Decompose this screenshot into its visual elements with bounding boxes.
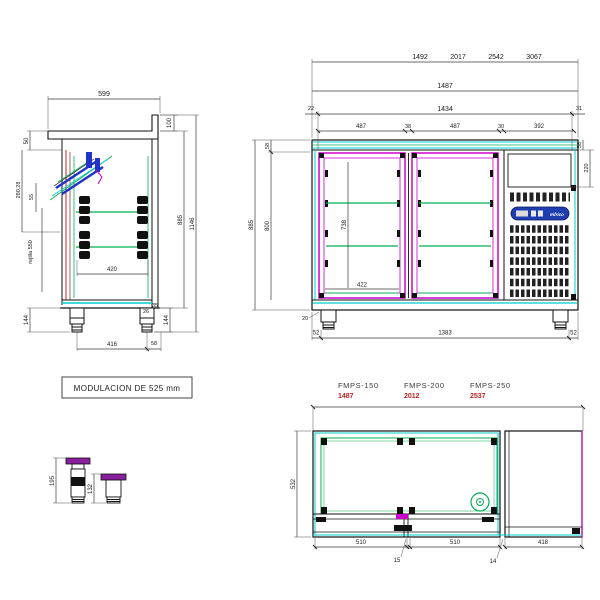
shelf-slides bbox=[79, 196, 148, 259]
dim-front-body-height: 885 bbox=[249, 219, 255, 230]
foot-detail-short: 132 bbox=[88, 474, 126, 503]
dim-inner-width: 420 bbox=[107, 267, 118, 273]
modulation-note: MODULACION DE 525 mm bbox=[62, 377, 192, 398]
dim-foot-offset-right: 52 bbox=[570, 331, 577, 337]
dim-door-inner-width: 422 bbox=[357, 283, 368, 289]
plan-body bbox=[313, 431, 500, 537]
dim-plan-door1: 510 bbox=[356, 540, 367, 546]
front-dimensions-top: 1492 2017 2542 3067 1487 22 1434 31 487 … bbox=[305, 54, 585, 150]
dim-plan-motor: 418 bbox=[538, 540, 549, 546]
dim-inner-height: 800 bbox=[265, 220, 271, 231]
dim-foot-short-height: 132 bbox=[88, 483, 94, 494]
technical-drawing-canvas: 599 100 885 1146 50 280,28 55 rejilla 55… bbox=[0, 0, 600, 600]
model-2-width: 2012 bbox=[404, 393, 420, 400]
dim-top-thickness: 50 bbox=[24, 137, 30, 144]
dim-plan-gap1: 15 bbox=[394, 558, 401, 564]
model-2-name: FMPS-200 bbox=[404, 381, 445, 390]
dim-splash-height: 100 bbox=[167, 117, 173, 128]
dim-foot-d2: 35 bbox=[152, 303, 158, 309]
dim-foot-offset-left: 52 bbox=[313, 331, 320, 337]
dim-variant-4: 3067 bbox=[526, 54, 542, 61]
dim-total-height: 1146 bbox=[190, 217, 196, 231]
brand-logo: Infrico bbox=[550, 212, 564, 217]
front-view: Infrico 1492 2017 2542 306 bbox=[249, 54, 594, 340]
control-panel[interactable]: Infrico bbox=[511, 207, 569, 220]
side-worktop bbox=[48, 115, 158, 139]
dim-left-edge: 22 bbox=[308, 106, 314, 112]
dim-foot-tall-height: 195 bbox=[50, 475, 56, 486]
motor-blank-panel bbox=[508, 154, 571, 187]
dim-side-width: 599 bbox=[98, 91, 110, 98]
dim-right-edge: 31 bbox=[576, 106, 582, 112]
dim-foot-width: 58 bbox=[151, 341, 157, 347]
dim-gap2: 30 bbox=[498, 124, 504, 130]
dim-top-height: 58 bbox=[265, 143, 271, 149]
dim-variant-2: 2017 bbox=[450, 54, 466, 61]
controller-button[interactable] bbox=[531, 211, 536, 217]
front-feet bbox=[321, 310, 568, 329]
model-3-name: FMPS-250 bbox=[470, 381, 511, 390]
side-dimensions: 599 100 885 1146 50 280,28 55 rejilla 55… bbox=[16, 91, 199, 351]
dim-motor-top: 58 bbox=[577, 142, 583, 148]
controller-display bbox=[516, 211, 528, 217]
dim-plan-depth: 532 bbox=[291, 478, 297, 489]
dim-plinth: 20 bbox=[302, 316, 308, 322]
dim-feet-span: 416 bbox=[107, 342, 118, 348]
dim-foot-height-left: 144 bbox=[24, 314, 30, 325]
foot-detail-tall: 195 bbox=[50, 458, 90, 503]
condenser-grille bbox=[510, 229, 570, 293]
dim-panel-height: 220 bbox=[584, 163, 590, 172]
dim-slide-gap: 55 bbox=[29, 194, 35, 200]
dim-total-width: 1487 bbox=[437, 83, 453, 90]
dim-door-height: 738 bbox=[342, 219, 348, 230]
dim-feet-span: 1383 bbox=[438, 331, 452, 337]
label-rejilla: rejilla 550 bbox=[28, 240, 34, 264]
model-1-name: FMPS-150 bbox=[338, 381, 379, 390]
model-table: FMPS-150 1487 FMPS-200 2012 FMPS-250 253… bbox=[338, 381, 511, 400]
rail-mechanism bbox=[50, 152, 112, 200]
dim-variant-1: 1492 bbox=[412, 54, 428, 61]
dim-plan-gap2: 14 bbox=[490, 559, 497, 565]
dim-plan-door2: 510 bbox=[450, 540, 461, 546]
modulation-label: MODULACION DE 525 mm bbox=[74, 384, 181, 393]
dim-variant-3: 2542 bbox=[488, 54, 504, 61]
dim-diag-depth: 280,28 bbox=[16, 182, 22, 199]
front-dimensions-left: 885 58 800 bbox=[249, 140, 310, 310]
dim-gap1: 38 bbox=[405, 124, 411, 130]
plan-motor-section bbox=[505, 431, 582, 537]
dim-door2-width: 487 bbox=[450, 124, 461, 130]
model-1-width: 1487 bbox=[338, 393, 354, 400]
plan-view: FMPS-150 1487 FMPS-200 2012 FMPS-250 253… bbox=[291, 381, 585, 565]
dim-foot-d1: 26 bbox=[143, 309, 149, 315]
dim-foot-height-right: 144 bbox=[164, 314, 170, 325]
side-view: 599 100 885 1146 50 280,28 55 rejilla 55… bbox=[16, 91, 199, 351]
dim-inner-width: 1434 bbox=[437, 106, 453, 113]
front-dimensions-bottom: 20 52 1383 52 bbox=[302, 312, 578, 340]
controller-button[interactable] bbox=[538, 211, 543, 217]
side-feet bbox=[70, 308, 154, 332]
dim-motor-width: 392 bbox=[534, 124, 545, 130]
dim-side-body-height: 885 bbox=[178, 214, 184, 225]
dim-door1-width: 487 bbox=[356, 124, 367, 130]
model-3-width: 2537 bbox=[470, 393, 486, 400]
